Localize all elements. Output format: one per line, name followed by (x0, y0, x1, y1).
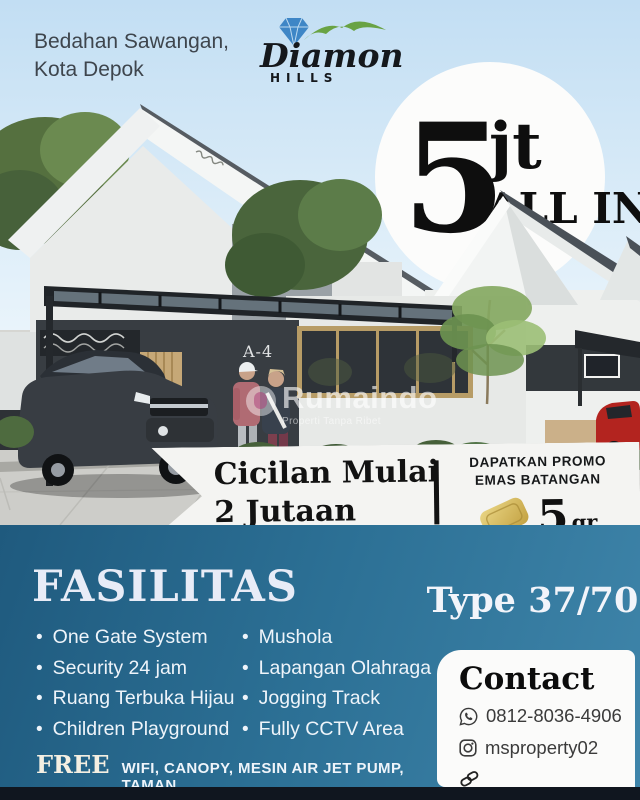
facility-label: Mushola (259, 626, 333, 649)
installment-line1: Cicilan Mulai (214, 453, 440, 493)
facilities-column-1: •One Gate System •Security 24 jam •Ruang… (36, 626, 236, 748)
link-icon (459, 769, 481, 789)
bottom-strip (0, 787, 640, 800)
watermark-tagline: Properti Tanpa Ribet (282, 416, 438, 427)
bullet-icon: • (36, 688, 43, 710)
list-item: •Fully CCTV Area (242, 718, 432, 741)
contact-phone: 0812-8036-4906 (486, 705, 622, 727)
list-item: •Lapangan Olahraga (242, 657, 432, 680)
bullet-icon: • (242, 719, 249, 741)
facilities-column-2: •Mushola •Lapangan Olahraga •Jogging Tra… (242, 626, 432, 748)
contact-link-row (459, 769, 635, 789)
facility-label: Lapangan Olahraga (259, 657, 431, 680)
bullet-icon: • (36, 658, 43, 680)
list-item: •Security 24 jam (36, 657, 236, 680)
bullet-icon: • (242, 658, 249, 680)
watermark: Rumaindo Properti Tanpa Ribet (246, 382, 438, 427)
location-line1: Bedahan Sawangan, (34, 28, 229, 56)
logo-sub-brand: HILLS (270, 71, 338, 85)
contact-instagram-row: msproperty02 (459, 737, 635, 759)
diamond-hills-logo: Diamond HILLS (252, 10, 402, 86)
bullet-icon: • (36, 719, 43, 741)
facility-label: Fully CCTV Area (259, 718, 404, 741)
list-item: •One Gate System (36, 626, 236, 649)
facility-label: Security 24 jam (53, 657, 187, 680)
location-line2: Kota Depok (34, 56, 229, 84)
banner-divider (434, 460, 440, 524)
unit-label: A-4 (242, 342, 273, 361)
free-label: FREE (36, 750, 110, 779)
contact-heading: Contact (459, 664, 635, 695)
facility-label: Children Playground (53, 718, 230, 741)
promo-line1: DAPATKAN PROMO (450, 452, 626, 472)
list-item: •Children Playground (36, 718, 236, 741)
price-unit: jt (484, 109, 542, 184)
unit-type-label: Type 37/70 (425, 580, 640, 621)
watermark-logo-icon (246, 386, 276, 416)
installment-title: Cicilan Mulai 2 Jutaan (214, 453, 440, 531)
location-text: Bedahan Sawangan, Kota Depok (34, 28, 229, 83)
contact-card: Contact 0812-8036-4906 msproperty02 (437, 650, 635, 787)
whatsapp-icon (459, 707, 478, 726)
list-item: •Mushola (242, 626, 432, 649)
facility-label: Jogging Track (259, 687, 380, 710)
facilities-heading: FASILITAS (32, 562, 298, 612)
list-item: •Jogging Track (242, 687, 432, 710)
contact-instagram: msproperty02 (485, 737, 598, 759)
bullet-icon: • (242, 688, 249, 710)
logo-brand: Diamond (259, 36, 402, 75)
promo-line2: EMAS BATANGAN (450, 470, 626, 490)
watermark-name: Rumaindo (282, 382, 438, 413)
facility-label: One Gate System (53, 626, 208, 649)
bullet-icon: • (242, 627, 249, 649)
contact-phone-row: 0812-8036-4906 (459, 705, 635, 727)
bullet-icon: • (36, 627, 43, 649)
property-flyer: 5 jt ALL IN (0, 0, 640, 800)
facility-label: Ruang Terbuka Hijau (53, 687, 235, 710)
list-item: •Ruang Terbuka Hijau (36, 687, 236, 710)
instagram-icon (459, 739, 477, 757)
